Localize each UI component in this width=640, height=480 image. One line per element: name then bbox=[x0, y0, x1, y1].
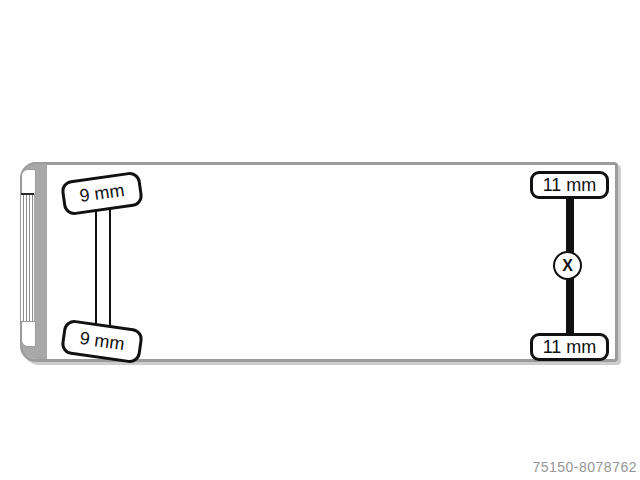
front-axle-line bbox=[95, 210, 111, 326]
tire-tread-diagram: 9 mm 9 mm 11 mm 11 mm X 75150-8078762 bbox=[0, 0, 640, 480]
tread-depth-value: 9 mm bbox=[78, 180, 125, 207]
rear-right-tire-tread-label: 11 mm bbox=[530, 333, 609, 361]
listing-id-text: 75150-8078762 bbox=[532, 459, 637, 475]
tread-depth-value: 11 mm bbox=[543, 337, 597, 358]
tread-depth-value: 11 mm bbox=[543, 175, 597, 196]
front-bumper-corner-top bbox=[21, 169, 36, 195]
driven-axle-x-label: X bbox=[562, 257, 573, 275]
driven-axle-x-icon: X bbox=[553, 251, 582, 280]
front-grille-hatch bbox=[21, 193, 34, 323]
front-bumper-corner-bottom bbox=[21, 321, 36, 347]
tread-depth-value: 9 mm bbox=[78, 328, 125, 355]
rear-left-tire-tread-label: 11 mm bbox=[530, 171, 609, 199]
